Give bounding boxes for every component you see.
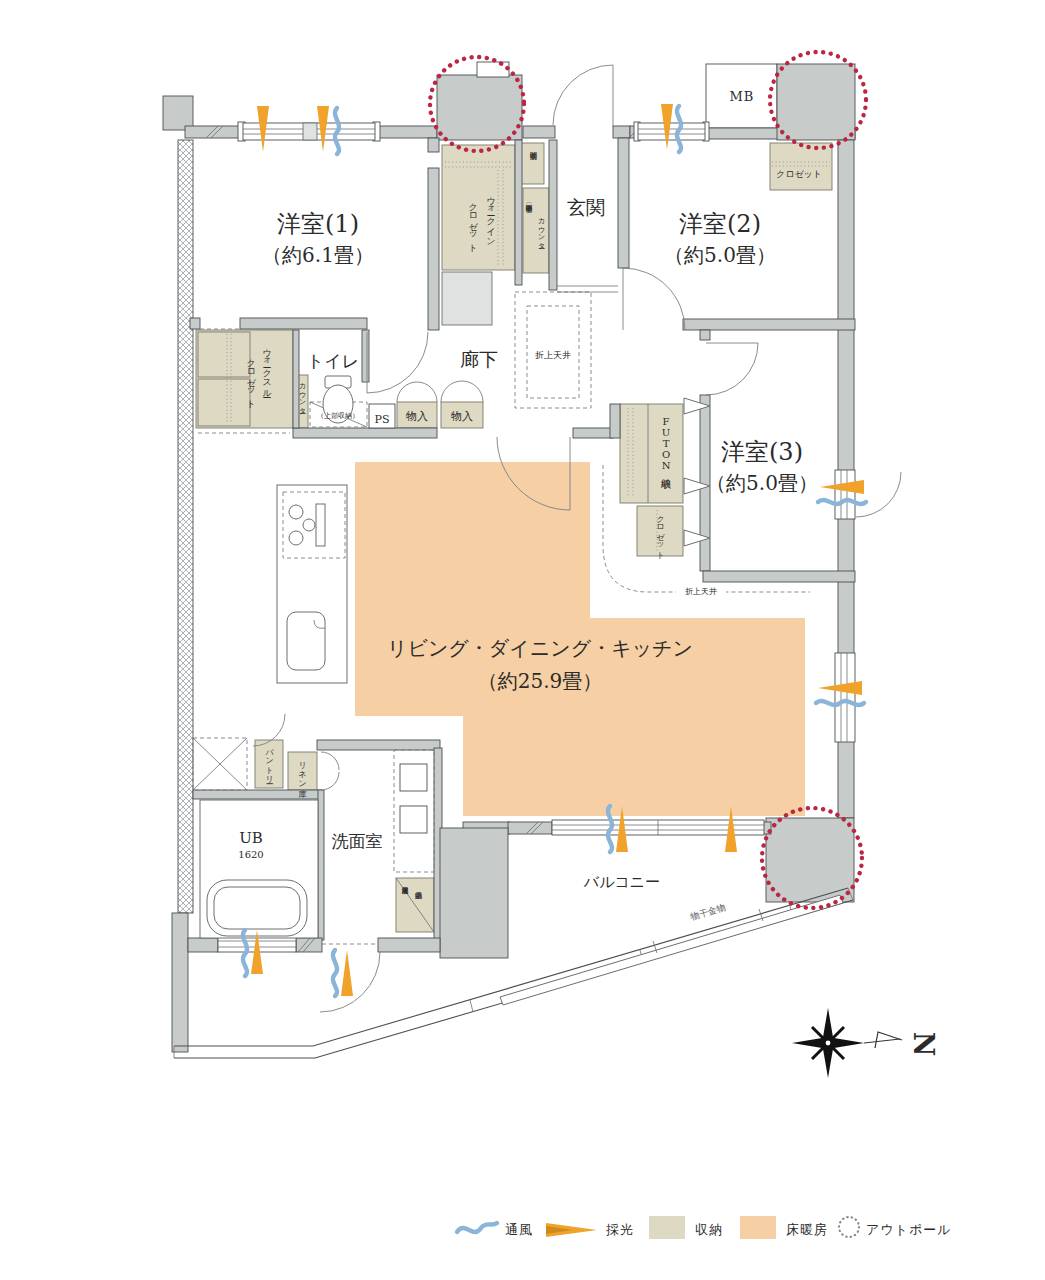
label-ps: PS [375,413,390,426]
fixtures [200,376,353,938]
legend: 通風 採光 収納 床暖房 アウトポール [457,1216,952,1239]
window-w1-divider [303,123,317,140]
pillar-bottom-right [766,818,854,902]
wall-ub-east [318,790,324,940]
label-toilet: トイレ [307,351,359,371]
vanity-sink-2 [400,806,427,833]
window-w3 [835,470,855,519]
wall-w1-east-a [428,138,439,152]
wall-hall-south-a [293,428,437,438]
label-western2-name: 洋室(2) [679,210,761,238]
wall-entrance-west [549,140,557,290]
label-storage1: 物入 [406,410,428,423]
wall-entrance-right [613,126,630,138]
label-bath: UB [239,829,263,847]
closet-w2-box [770,143,832,190]
wic-step [442,272,492,325]
label-wtc-1: ウォークスルー [262,342,272,398]
entrance-counter-box [523,188,549,273]
label-ceiling2: 折上天井 [685,587,717,596]
legend-label-ventilation: 通風 [505,1222,533,1237]
wall-hall-south-c [610,404,620,438]
floorplan-page: N 洋室(1) （約6.1畳） 洋室(2) （約5.0畳） 洋室(3) （約5.… [0,0,1045,1280]
wall-w1-bottom-a [190,318,200,329]
ventilation-icon [816,701,864,705]
boundary-wall-left [178,140,193,913]
label-hallway: 廊下 [460,348,498,370]
floorplan-drawing: N 洋室(1) （約6.1畳） 洋室(2) （約5.0畳） 洋室(3) （約5.… [0,0,1045,1280]
entrance-step [557,286,618,292]
label-counter: カウンター [537,213,545,250]
wall-top-left-step [163,96,193,130]
vanity-sink-1 [400,764,427,791]
futon-storage-box [620,404,683,503]
label-wic-1: ウォークイン [486,190,496,245]
label-western1-size: （約6.1畳） [262,243,374,267]
label-washroom: 洗面室 [332,831,383,851]
wall-entrance-left [523,126,555,138]
compass-line [864,1039,900,1043]
wall-ldk-south-b [508,822,552,834]
window-ldk-east [835,653,855,742]
north-label: N [908,1032,939,1057]
wall-right-3 [838,740,854,818]
pillar-top-right [777,64,855,140]
legend-heating-swatch [740,1216,776,1239]
drying-bar [500,895,843,1005]
label-wtc-2: クロゼット [246,352,256,408]
ventilation-icon [333,950,337,996]
wall-right-1 [838,140,854,472]
label-ldk-size: （約25.9畳） [478,669,603,693]
grill [316,504,325,546]
ventilation-icon [677,106,681,152]
legend-label-outpole: アウトポール [866,1222,952,1237]
wall-ub-north [193,790,321,799]
wtc-box-upper [198,332,250,377]
window-w3-casement-arc [856,472,901,517]
daylight-icon [341,950,353,996]
label-toilet-counter: カウンター [298,378,306,415]
kitchen-sink [287,612,325,670]
wall-w1-bottom-b [240,318,367,329]
wall-w1-east-b [428,168,439,330]
legend-storage-swatch [649,1216,685,1239]
label-pantry: パントリー [265,743,275,785]
entrance-storage-box [521,143,544,184]
wall-right-2 [838,517,854,655]
legend-ventilation-icon [457,1223,497,1232]
w2-door-arc [623,268,685,330]
label-mb: MB [730,89,755,104]
legend-label-storage: 収納 [695,1222,723,1237]
pillar-washroom-south [440,828,508,958]
wall-toilet-east [362,330,369,382]
w1-door-arc [367,332,428,393]
wall-washroom-north [317,740,440,750]
washroom-door-arcs [321,752,339,790]
wall-left-bottom [172,913,188,1052]
wall-w3-bottom [703,571,855,582]
burner-3 [289,531,303,545]
wall-entrance-east [618,138,629,268]
ventilation-icon [818,500,866,504]
legend-label-heating: 床暖房 [786,1222,828,1237]
burner-2 [303,519,315,531]
label-toilet-upper: （上部収納） [317,412,359,420]
label-drying: 物干金物 [689,902,726,922]
burner-1 [289,505,303,519]
wall-wic-east [515,140,522,285]
label-western3-size: （約5.0畳） [706,471,818,495]
label-wic-2: クロゼット [468,196,478,252]
w3-door-arc [706,343,758,395]
label-closet-w2: クロゼット [776,169,822,179]
legend-label-daylight: 採光 [606,1222,634,1237]
label-western3-name: 洋室(3) [721,438,803,466]
label-ldk-name: リビング・ダイニング・キッチン [387,636,693,660]
monoire2-door-arcs [441,381,483,402]
label-storage2: 物入 [451,410,473,423]
label-ceiling1: 折上天井 [535,350,571,360]
walkin-closet [442,145,515,270]
label-bath-size: 1620 [238,849,263,860]
wall-hall-south-b [573,428,613,438]
legend-outpole-icon [839,1217,859,1237]
label-closet-w3: クロゼット [656,510,665,559]
entrance-door-arc [553,65,613,127]
window-w2 [638,123,705,140]
label-entrance: 玄関 [567,196,605,218]
label-western2-size: （約5.0畳） [664,243,776,267]
compass: N [792,1008,939,1078]
wall-w3-west-stub [700,330,710,340]
wall-w2-bottom [683,319,855,330]
pillar-top-left [437,75,522,140]
pillar-tl-notch [477,62,509,77]
wall-bath-south-a [188,938,218,952]
label-western1-name: 洋室(1) [277,210,359,238]
bathtub-inner [214,887,300,929]
ventilation-icon [335,108,339,154]
wall-bath-south-c [378,938,440,952]
compass-center [826,1041,831,1046]
label-balcony: バルコニー [583,873,660,891]
wtc-box-lower [198,379,250,426]
monoire1-door-arcs [397,382,437,402]
